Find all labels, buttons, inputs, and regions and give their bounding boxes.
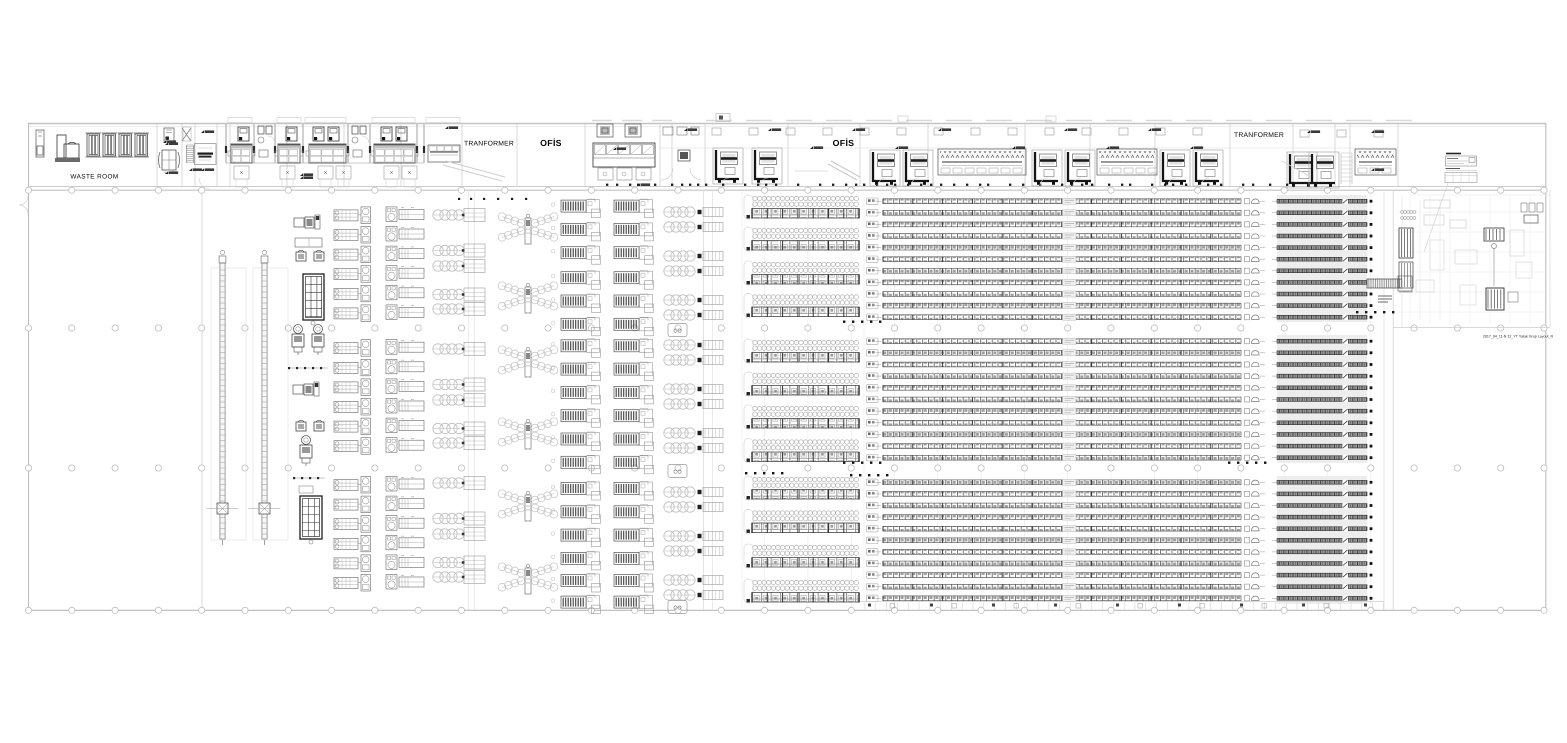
- svg-text:OFİS: OFİS: [833, 138, 855, 148]
- svg-text:CO: CO: [673, 329, 682, 335]
- svg-text:WASTE ROOM: WASTE ROOM: [70, 174, 118, 181]
- svg-text:TRANFORMER: TRANFORMER: [1234, 132, 1284, 139]
- svg-text:CO: CO: [673, 606, 682, 612]
- svg-text:OFİS: OFİS: [540, 138, 562, 148]
- svg-text:TRANFORMER: TRANFORMER: [464, 140, 514, 147]
- svg-text:2017_04_11-N 12_YT Yatak Grup: 2017_04_11-N 12_YT Yatak Grup Layout_R: [1483, 335, 1554, 339]
- svg-text:CO: CO: [673, 470, 682, 476]
